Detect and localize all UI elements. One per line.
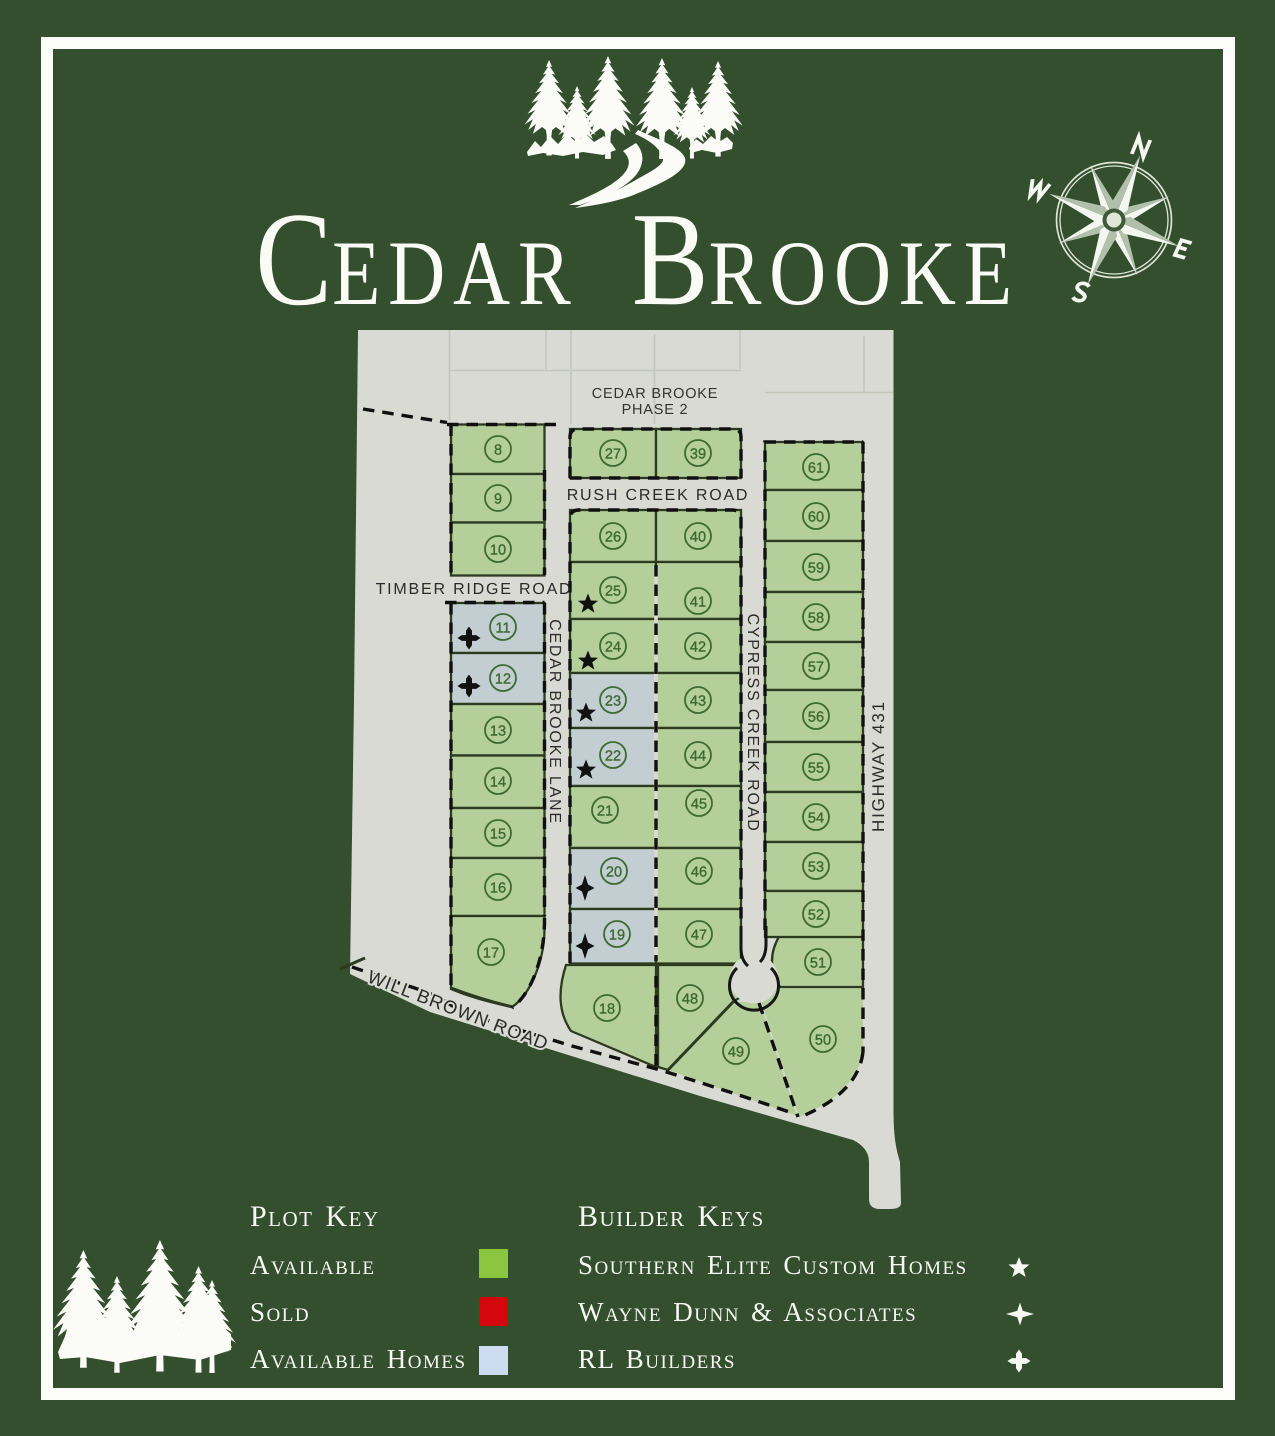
svg-text:58: 58	[808, 611, 824, 627]
svg-text:43: 43	[690, 694, 706, 710]
svg-text:10: 10	[490, 543, 506, 559]
svg-text:13: 13	[490, 724, 506, 740]
svg-text:9: 9	[494, 492, 502, 508]
svg-text:18: 18	[599, 1002, 615, 1018]
svg-text:CYPRESS CREEK ROAD: CYPRESS CREEK ROAD	[744, 613, 761, 832]
svg-text:57: 57	[808, 660, 824, 676]
svg-text:55: 55	[808, 761, 824, 777]
svg-text:RUSH CREEK ROAD: RUSH CREEK ROAD	[567, 487, 750, 504]
svg-text:25: 25	[605, 584, 621, 600]
svg-text:40: 40	[690, 530, 706, 546]
svg-text:CEDAR BROOKE LANE: CEDAR BROOKE LANE	[546, 619, 563, 825]
svg-text:52: 52	[808, 908, 824, 924]
svg-text:12: 12	[495, 672, 511, 688]
svg-text:21: 21	[597, 804, 613, 820]
svg-text:49: 49	[728, 1045, 744, 1061]
svg-text:61: 61	[808, 461, 824, 477]
svg-text:42: 42	[690, 640, 706, 656]
svg-text:27: 27	[605, 447, 621, 463]
svg-text:60: 60	[808, 510, 824, 526]
svg-text:47: 47	[691, 928, 707, 944]
svg-text:56: 56	[808, 710, 824, 726]
svg-text:26: 26	[605, 530, 621, 546]
svg-text:23: 23	[605, 694, 621, 710]
svg-text:14: 14	[490, 775, 506, 791]
svg-text:44: 44	[690, 749, 706, 765]
svg-text:HIGHWAY 431: HIGHWAY 431	[869, 700, 888, 832]
svg-text:51: 51	[810, 956, 826, 972]
svg-text:11: 11	[495, 621, 510, 637]
svg-text:CEDAR BROOKE: CEDAR BROOKE	[592, 386, 718, 402]
svg-text:53: 53	[808, 860, 824, 876]
svg-text:50: 50	[815, 1033, 831, 1049]
svg-text:19: 19	[609, 928, 625, 944]
svg-text:48: 48	[682, 992, 698, 1008]
svg-text:16: 16	[490, 881, 506, 897]
svg-text:PHASE 2: PHASE 2	[622, 402, 689, 418]
svg-text:39: 39	[690, 447, 706, 463]
svg-text:15: 15	[490, 827, 506, 843]
svg-text:TIMBER RIDGE ROAD: TIMBER RIDGE ROAD	[376, 581, 573, 598]
svg-text:59: 59	[808, 561, 824, 577]
svg-text:8: 8	[494, 443, 502, 459]
svg-text:22: 22	[605, 749, 621, 765]
svg-text:54: 54	[808, 811, 824, 827]
svg-text:24: 24	[605, 640, 621, 656]
svg-text:20: 20	[606, 865, 622, 881]
svg-text:17: 17	[483, 946, 499, 962]
svg-text:46: 46	[691, 865, 707, 881]
svg-text:41: 41	[690, 595, 706, 611]
svg-text:45: 45	[691, 797, 707, 813]
